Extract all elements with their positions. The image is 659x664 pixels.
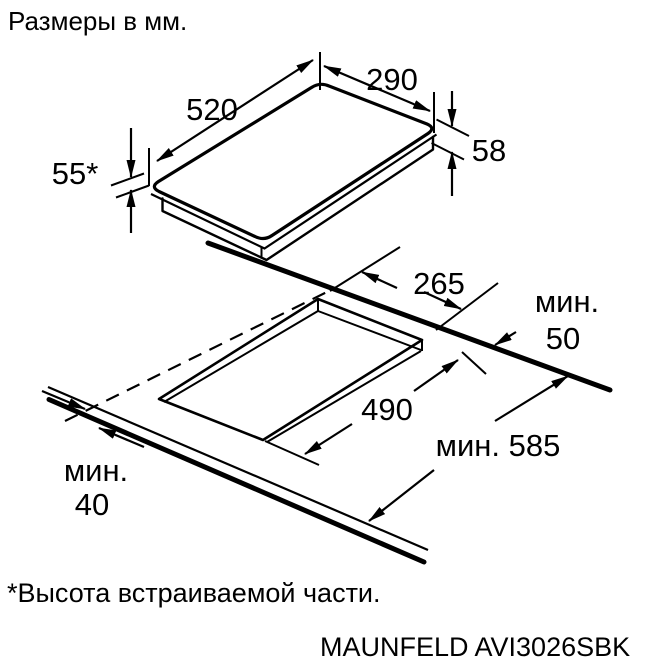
dim-min-40: мин. 40 — [42, 391, 144, 522]
model-name: MAUNFELD AVI3026SBK — [320, 632, 630, 662]
dim-290: 290 — [324, 62, 434, 133]
arrow — [414, 360, 458, 391]
footnote: *Высота встраиваемой части. — [7, 578, 381, 608]
extension-line — [432, 143, 465, 160]
arrow — [495, 376, 568, 421]
page-title: Размеры в мм. — [8, 6, 187, 36]
dim-520: 520 — [149, 52, 320, 186]
min-50-value: 50 — [546, 321, 580, 356]
min-585-label: мин. 585 — [436, 428, 561, 463]
arrow — [495, 332, 516, 345]
extension-line — [265, 441, 319, 465]
dimension-diagram: Размеры в мм. *Высота встраиваемой части… — [0, 0, 659, 664]
arrow — [305, 424, 352, 454]
extension-line — [462, 352, 486, 374]
arrow — [369, 470, 434, 521]
cutout-view: 265 мин. 50 490 мин. 585 мин. 40 — [42, 243, 610, 562]
dim-58: 58 — [432, 91, 507, 196]
min-40-prefix: мин. — [64, 453, 128, 488]
dim-290-label: 290 — [366, 62, 418, 97]
dim-min-50: мин. 50 — [495, 284, 599, 356]
dashed-reference-line — [65, 289, 333, 421]
min-40-value: 40 — [75, 487, 109, 522]
dim-55: 55* — [52, 128, 149, 233]
extension-line — [111, 174, 144, 186]
dim-490-label: 490 — [361, 392, 413, 427]
dim-58-label: 58 — [472, 133, 506, 168]
dim-520-label: 520 — [186, 92, 238, 127]
dim-265-label: 265 — [413, 266, 465, 301]
min-50-prefix: мин. — [535, 284, 599, 319]
hob-glass-edge — [151, 135, 437, 249]
arrow — [362, 272, 397, 288]
hob-top-view: 520 290 55* 58 — [52, 52, 507, 260]
dim-55-label: 55* — [52, 156, 99, 191]
extension-line — [116, 186, 149, 198]
